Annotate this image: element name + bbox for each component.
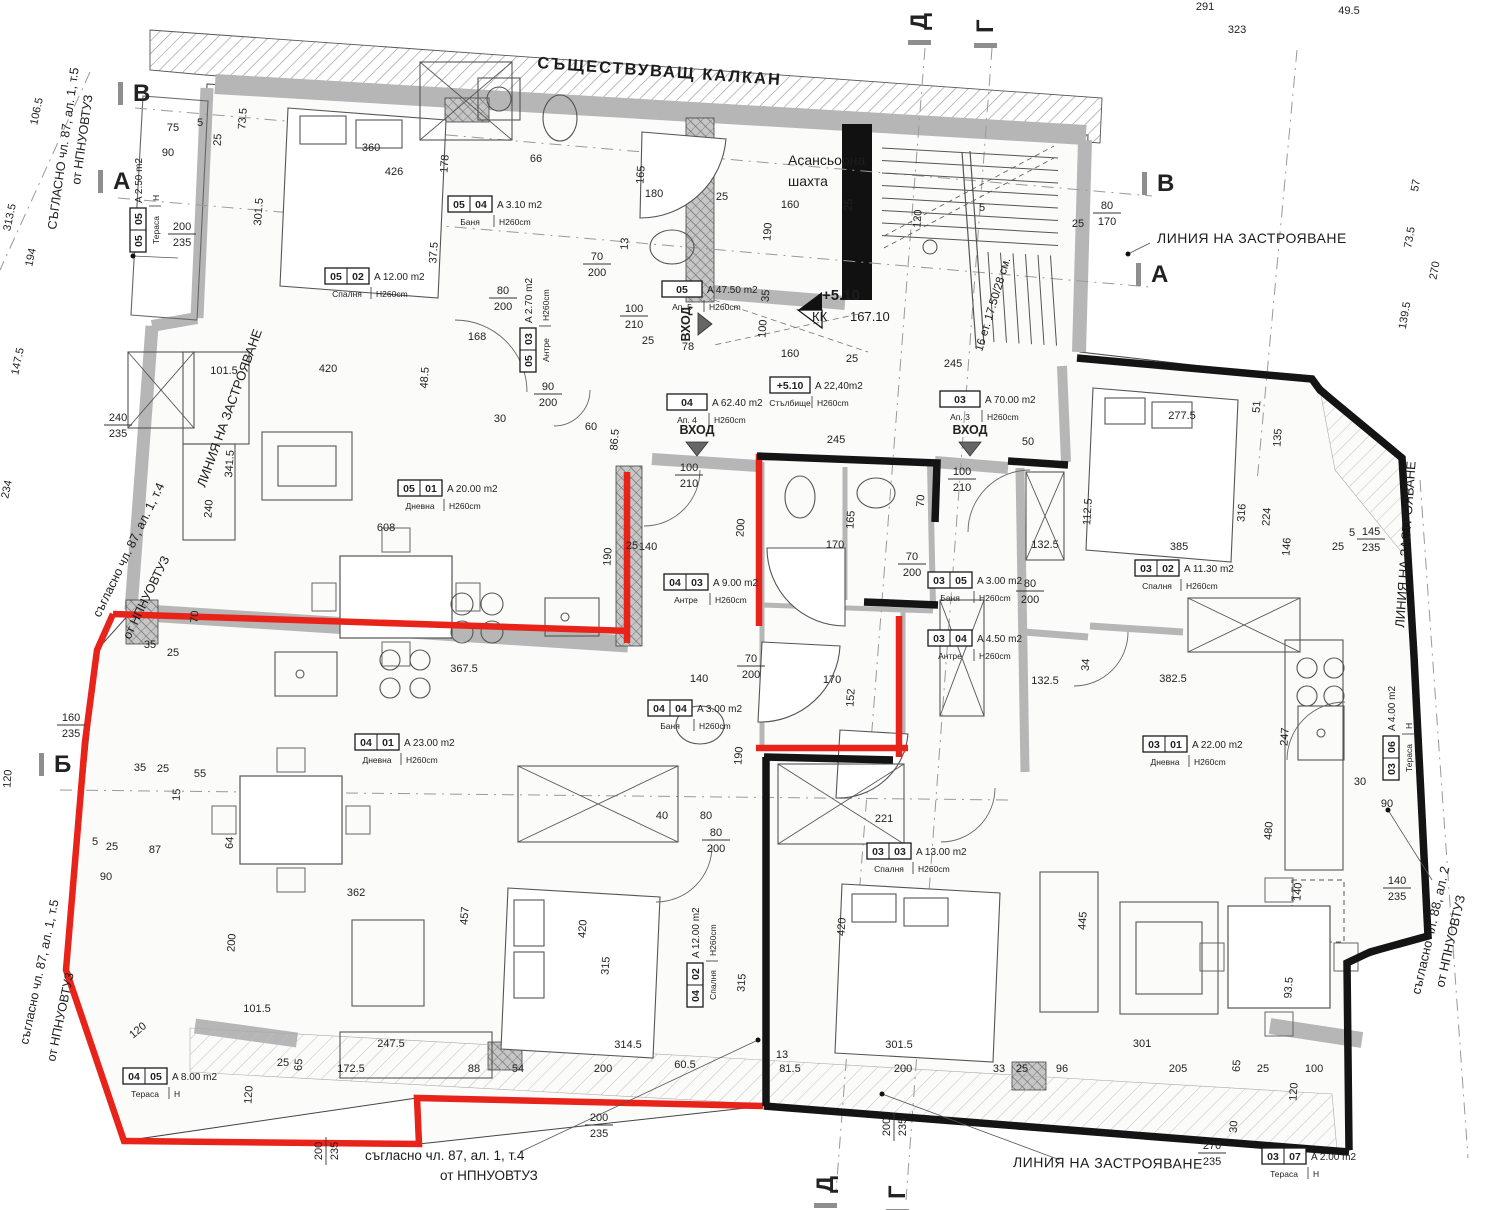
- dim-text: 04: [681, 397, 693, 409]
- dim-text: 5: [92, 836, 98, 848]
- dim-text: 200: [588, 267, 606, 279]
- dim-text: 200: [734, 518, 747, 537]
- dim-text: H260cm: [714, 415, 746, 425]
- dim-text: H260cm: [715, 595, 747, 605]
- dim-text: Тераса: [1270, 1169, 1298, 1179]
- dim-text: A 3.10 m2: [497, 200, 542, 211]
- dim-text: Ап. 5: [672, 302, 692, 312]
- dim-text: А: [113, 168, 130, 195]
- dim-text: 03: [933, 575, 945, 587]
- dim-text: 200: [594, 1063, 612, 1075]
- dim-text: 25: [106, 841, 118, 853]
- dim-text: Антре: [674, 595, 698, 605]
- dim-text: 78: [682, 341, 694, 353]
- wall: [1079, 140, 1085, 352]
- dim-text: 301.5: [885, 1039, 913, 1051]
- dim-text: 75: [167, 122, 179, 134]
- dim-text: 25: [167, 647, 179, 659]
- dim-text: 270: [1203, 1140, 1221, 1152]
- dim-text: 01: [1170, 739, 1182, 751]
- dim-text: 200: [225, 933, 238, 952]
- dim-text: 03: [1140, 563, 1152, 575]
- dim-text: 80: [1024, 578, 1036, 590]
- room-label: 0505A 2.50 m2ТерасаH: [130, 158, 161, 252]
- dim-text: 313.5: [1, 203, 18, 232]
- dim-text: 314.5: [614, 1039, 642, 1051]
- floor-plan-page: 29149.53235773.5270139.5106.5313.5194147…: [0, 0, 1500, 1210]
- dim-text: 120: [242, 1085, 255, 1104]
- dim-text: 160: [781, 199, 799, 211]
- dim-text: 139.5: [1397, 301, 1414, 330]
- dim-text: 420: [835, 917, 848, 936]
- dim-text: 90: [1381, 798, 1393, 810]
- dim-text: H260cm: [708, 924, 718, 956]
- dim-text: 152: [844, 688, 857, 707]
- black-boundary-line: [764, 757, 893, 760]
- dim-text: 25: [277, 1057, 289, 1069]
- dim-text: 5: [1349, 527, 1355, 539]
- dim-text: Спалня: [332, 289, 362, 299]
- dim-text: 301.5: [252, 198, 266, 226]
- dim-text: A 2.50 m2: [134, 158, 145, 203]
- dim-text: 01: [382, 737, 394, 749]
- dim-text: 170: [826, 539, 844, 551]
- dim-text: 190: [601, 547, 614, 566]
- dim-text: 235: [62, 728, 80, 740]
- dim-text: 200: [707, 843, 725, 855]
- note-87-5-bottom-left-2: от НПНУОВТУЗ: [44, 971, 77, 1062]
- dim-text: 106.5: [28, 97, 45, 126]
- dim-text: H260cm: [699, 721, 731, 731]
- dim-text: A 62.40 m2: [712, 398, 763, 409]
- dim-text: 200: [590, 1112, 608, 1124]
- wall: [1062, 366, 1066, 462]
- dim-text: 03: [894, 846, 906, 858]
- dim-text: 235: [897, 1118, 909, 1136]
- dim-text: H260cm: [376, 289, 408, 299]
- dim-text: 170: [823, 674, 841, 686]
- dim-text: 05: [150, 1071, 162, 1083]
- dim-text: 96: [1056, 1063, 1068, 1075]
- dim-text: 13: [776, 1049, 788, 1061]
- dim-text: H260cm: [979, 593, 1011, 603]
- dim-text: A 13.00 m2: [916, 847, 967, 858]
- dim-text: 05: [403, 483, 415, 495]
- floor-plan-drawing: 29149.53235773.5270139.5106.5313.5194147…: [0, 0, 1500, 1210]
- section-marker-Д: Д: [906, 13, 933, 45]
- dim-text: 25: [843, 198, 856, 211]
- dim-text: 90: [100, 871, 112, 883]
- dim-text: 33: [993, 1063, 1005, 1075]
- dim-text: 13: [619, 237, 632, 250]
- dim-text: A 3.00 m2: [697, 704, 742, 715]
- dim-text: Тераса: [1404, 744, 1414, 772]
- dim-text: 360: [362, 142, 380, 154]
- section-marker-В: В: [1142, 170, 1174, 197]
- dim-text: Спалня: [708, 970, 718, 1000]
- dim-text: 87: [149, 844, 161, 856]
- dim-text: Баня: [460, 217, 480, 227]
- dim-text: 235: [1203, 1156, 1221, 1168]
- dim-text: 02: [352, 271, 364, 283]
- dim-text: 168: [468, 331, 486, 343]
- dim-text: 70: [591, 251, 603, 263]
- dim-text: 03: [691, 577, 703, 589]
- dim-text: 240: [109, 412, 127, 424]
- leader-line: [133, 256, 178, 258]
- elevator-shaft-label-2: шахта: [788, 173, 828, 189]
- dim-text: 178: [438, 154, 451, 173]
- dim-text: 5: [197, 117, 203, 129]
- dim-text: В: [133, 80, 150, 107]
- dim-text: 04: [955, 633, 967, 645]
- dim-text: 145: [1362, 526, 1380, 538]
- dim-text: 55: [194, 768, 206, 780]
- dim-text: 301: [1133, 1038, 1151, 1050]
- dim-text: A 70.00 m2: [985, 395, 1036, 406]
- dim-text: Антре: [541, 338, 551, 362]
- dim-text: 200: [1021, 594, 1039, 606]
- dim-text: 205: [1169, 1063, 1187, 1075]
- dim-text: H260cm: [1186, 581, 1218, 591]
- dim-text: H: [151, 195, 161, 201]
- dim-text: 30: [1228, 1120, 1241, 1133]
- dim-text: 88: [468, 1063, 480, 1075]
- dim-text: 146: [1280, 537, 1293, 556]
- dim-text: A 11.30 m2: [1184, 564, 1234, 575]
- dim-text: 323: [1228, 24, 1246, 36]
- section-marker-Д: Д: [812, 1176, 839, 1208]
- section-marker-А: А: [1136, 261, 1168, 288]
- dim-text: 25: [642, 335, 654, 347]
- dim-text: 04: [669, 577, 681, 589]
- dim-text: 25: [626, 540, 638, 552]
- dim-text: H: [174, 1089, 180, 1099]
- dim-text: A 3.00 m2: [977, 576, 1022, 587]
- dim-text: A 12.00 m2: [691, 907, 702, 958]
- dim-text: H260cm: [987, 412, 1019, 422]
- dim-text: 180: [645, 188, 663, 200]
- dim-text: H260cm: [979, 651, 1011, 661]
- dim-text: 270: [1428, 260, 1443, 280]
- dim-text: H260cm: [918, 864, 950, 874]
- dim-text: 05: [676, 284, 688, 296]
- dim-text: 06: [1386, 741, 1398, 753]
- dim-text: 210: [680, 478, 698, 490]
- dim-text: ВХОД: [952, 423, 987, 437]
- dim-text: 03: [523, 333, 535, 345]
- dim-text: 51: [1251, 400, 1264, 413]
- dim-text: 03: [1148, 739, 1160, 751]
- level-kk-value: 167.10: [850, 309, 890, 324]
- dim-text: 235: [173, 237, 191, 249]
- dim-text: 200: [494, 301, 512, 313]
- dim-text: 25: [1332, 541, 1344, 553]
- dim-text: H260cm: [449, 501, 481, 511]
- dim-text: 147.5: [9, 347, 26, 376]
- dim-text: 341.5: [223, 450, 237, 478]
- dim-text: A 4.50 m2: [977, 634, 1022, 645]
- dim-text: 65: [1231, 1059, 1244, 1072]
- dim-text: 04: [360, 737, 372, 749]
- dim-text: Дневна: [1150, 757, 1179, 767]
- dim-text: A 9.00 m2: [713, 578, 758, 589]
- dim-text: Б: [54, 751, 71, 778]
- dim-text: 5: [979, 202, 985, 214]
- dim-text: Д: [812, 1176, 839, 1193]
- bed: [835, 884, 1000, 1062]
- dim-text: 04: [690, 990, 702, 1002]
- elevator-shaft-label-1: Асансьорна: [788, 152, 865, 168]
- dim-text: 49.5: [1338, 5, 1359, 17]
- dim-text: 224: [1260, 507, 1273, 526]
- dim-text: 165: [844, 510, 857, 529]
- dim-text: 64: [224, 836, 237, 849]
- dim-text: 235: [1362, 542, 1380, 554]
- dim-text: 101.5: [243, 1003, 271, 1015]
- dim-text: 100: [756, 319, 769, 338]
- section-marker-А: А: [98, 168, 130, 195]
- dim-text: 120: [911, 209, 924, 228]
- dim-text: 316: [1235, 503, 1248, 522]
- dim-text: 100: [680, 462, 698, 474]
- dim-text: H: [1313, 1169, 1319, 1179]
- dim-text: Дневна: [405, 501, 434, 511]
- dim-text: 05: [133, 235, 145, 247]
- dim-text: 200: [742, 669, 760, 681]
- dim-text: 70: [915, 494, 928, 507]
- dim-text: 426: [385, 166, 403, 178]
- dim-text: 80: [710, 827, 722, 839]
- dim-text: 291: [1196, 1, 1214, 13]
- dim-text: Антре: [938, 651, 962, 661]
- dim-text: 140: [690, 673, 708, 685]
- dim-text: 200: [894, 1063, 912, 1075]
- leader-line: [1128, 243, 1150, 254]
- dim-stack: 160235: [57, 712, 85, 740]
- dim-text: Ап. 4: [677, 415, 697, 425]
- dim-text: 34: [1080, 658, 1093, 671]
- dim-text: 35: [144, 639, 156, 651]
- dim-text: 30: [494, 413, 506, 425]
- dim-text: 132.5: [1031, 675, 1059, 687]
- section-marker-Г: Г: [884, 1185, 911, 1210]
- dim-text: 15: [171, 788, 184, 801]
- dim-text: ВХОД: [679, 423, 714, 437]
- dim-text: 160: [781, 348, 799, 360]
- dim-text: А: [1151, 261, 1168, 288]
- dim-text: 420: [319, 363, 337, 375]
- dim-text: 194: [23, 247, 39, 267]
- note-87-4-bottom-2: от НПНУОВТУЗ: [440, 1168, 538, 1183]
- dim-text: 04: [128, 1071, 140, 1083]
- dim-text: 245: [827, 434, 845, 446]
- dim-text: 190: [732, 746, 745, 765]
- dim-text: Баня: [660, 721, 680, 731]
- dim-text: 200: [881, 1118, 893, 1136]
- dim-text: Тераса: [131, 1089, 159, 1099]
- dim-text: 90: [162, 147, 174, 159]
- dim-text: 235: [1388, 891, 1406, 903]
- level-kk: КК: [812, 309, 828, 324]
- note-87-4-bottom-1: съгласно чл. 87, ал. 1, т.4: [365, 1148, 525, 1163]
- dim-text: 48.5: [418, 367, 431, 389]
- building-line-label-top-right: ЛИНИЯ НА ЗАСТРОЯВАНЕ: [1157, 230, 1347, 246]
- dim-text: 165: [634, 165, 647, 184]
- dim-text: 70: [745, 653, 757, 665]
- dim-text: A 20.00 m2: [447, 484, 498, 495]
- dim-text: 200: [313, 1142, 325, 1160]
- dim-text: 480: [1262, 821, 1275, 840]
- dim-text: 362: [347, 887, 365, 899]
- dim-text: 190: [761, 222, 774, 241]
- dim-text: 172.5: [337, 1063, 365, 1075]
- dim-text: Спалня: [874, 864, 904, 874]
- dim-text: 221: [875, 813, 893, 825]
- dim-stack: 80170: [1093, 200, 1121, 228]
- section-marker-Г: Г: [972, 19, 999, 48]
- dim-text: 90: [542, 381, 554, 393]
- black-boundary-line: [1008, 461, 1068, 465]
- dim-text: 170: [1098, 216, 1116, 228]
- dim-text: 02: [1162, 563, 1174, 575]
- black-boundary-line: [864, 602, 938, 605]
- dim-text: 608: [377, 522, 395, 534]
- dim-text: 07: [1289, 1151, 1301, 1163]
- dim-text: 235: [109, 428, 127, 440]
- dim-text: 315: [735, 973, 748, 992]
- dim-text: Г: [884, 1185, 911, 1199]
- room-label: 0307A 2.00 m2ТерасаH: [1262, 1148, 1356, 1179]
- dim-text: A 22,40m2: [815, 381, 863, 392]
- dim-text: Г: [972, 19, 999, 33]
- dim-text: 70: [189, 610, 202, 623]
- dim-text: 445: [1076, 911, 1089, 930]
- dim-text: 37.5: [427, 242, 440, 264]
- dim-text: 234: [0, 479, 15, 499]
- dim-text: 04: [675, 703, 687, 715]
- dim-text: 03: [954, 394, 966, 406]
- wall: [1020, 468, 1025, 772]
- dim-text: 25: [1257, 1063, 1269, 1075]
- dim-text: Спалня: [1142, 581, 1172, 591]
- dim-text: 60.5: [674, 1059, 695, 1071]
- dim-text: A 2.00 m2: [1311, 1152, 1356, 1163]
- dim-stack: 200235: [168, 221, 196, 249]
- dim-text: H260cm: [406, 755, 438, 765]
- dim-text: 03: [933, 633, 945, 645]
- section-marker-Б: Б: [39, 751, 71, 778]
- dim-text: 04: [653, 703, 665, 715]
- dim-text: 05: [955, 575, 967, 587]
- dim-text: 05: [133, 213, 145, 225]
- dim-text: 100: [953, 466, 971, 478]
- dim-text: A 47.50 m2: [707, 285, 758, 296]
- dim-text: A 2.70 m2: [524, 278, 535, 323]
- dim-text: 05: [330, 271, 342, 283]
- section-marker-В: В: [118, 80, 150, 107]
- dim-text: 210: [625, 319, 643, 331]
- dim-text: 315: [599, 956, 612, 975]
- section-line: [1420, 480, 1468, 1158]
- dim-text: 420: [576, 919, 589, 938]
- dim-text: 93.5: [1282, 977, 1295, 999]
- dim-text: 235: [590, 1128, 608, 1140]
- dim-text: 100: [1305, 1063, 1323, 1075]
- dim-text: В: [1157, 170, 1174, 197]
- dim-text: 457: [458, 906, 471, 925]
- dim-text: Баня: [940, 593, 960, 603]
- dim-text: 100: [625, 303, 643, 315]
- dim-text: 35: [134, 762, 146, 774]
- dim-text: 140: [1388, 875, 1406, 887]
- dim-text: Стълбище: [769, 398, 811, 408]
- dim-text: 03: [1386, 763, 1398, 775]
- dim-text: H: [1404, 723, 1414, 729]
- dim-text: 25: [716, 191, 728, 203]
- dim-text: H260cm: [499, 217, 531, 227]
- dim-text: 210: [953, 482, 971, 494]
- dim-text: 73.5: [1402, 226, 1418, 249]
- wall: [652, 459, 758, 466]
- dim-text: 04: [475, 199, 487, 211]
- dim-text: 86.5: [608, 429, 621, 451]
- dim-text: Дневна: [362, 755, 391, 765]
- dim-text: 25: [1016, 1063, 1028, 1075]
- dim-text: 140: [639, 541, 657, 553]
- dim-text: 81.5: [779, 1063, 800, 1075]
- level-mark: +5.10: [822, 287, 860, 304]
- wall: [1024, 632, 1088, 637]
- bed: [501, 888, 660, 1058]
- dim-text: 65: [293, 1058, 306, 1071]
- dim-text: 01: [425, 483, 437, 495]
- dim-text: A 12.00 m2: [374, 272, 425, 283]
- dim-text: 277.5: [1168, 410, 1196, 422]
- wall: [935, 462, 1008, 468]
- dim-text: 57: [1409, 178, 1423, 192]
- dim-text: 73.5: [236, 108, 249, 130]
- dim-text: 160: [62, 712, 80, 724]
- dim-text: 05: [453, 199, 465, 211]
- bed: [1086, 388, 1238, 562]
- dim-text: 247.5: [377, 1038, 405, 1050]
- dim-text: 132.5: [1031, 539, 1059, 551]
- dim-text: 200: [173, 221, 191, 233]
- dim-text: Д: [906, 13, 933, 30]
- dim-text: 50: [1022, 436, 1034, 448]
- dim-text: 05: [523, 355, 535, 367]
- dim-text: 25: [846, 353, 858, 365]
- dim-text: 235: [329, 1142, 341, 1160]
- dim-text: 112.5: [1081, 498, 1095, 525]
- dim-text: 247: [1278, 727, 1291, 746]
- dim-text: 245: [944, 358, 962, 370]
- dim-text: 367.5: [450, 663, 478, 675]
- dim-text: H260cm: [541, 289, 551, 321]
- dim-text: 382.5: [1159, 673, 1187, 685]
- dim-text: Тераса: [151, 216, 161, 244]
- dim-text: H260cm: [1194, 757, 1226, 767]
- dim-text: 40: [656, 810, 668, 822]
- dim-text: A 23.00 m2: [404, 738, 455, 749]
- dim-text: 60: [585, 421, 597, 433]
- dim-text: 200: [539, 397, 557, 409]
- elevator-shaft-wall: [842, 124, 872, 300]
- table: [240, 776, 342, 864]
- table: [1228, 906, 1330, 1008]
- dim-text: 66: [530, 153, 542, 165]
